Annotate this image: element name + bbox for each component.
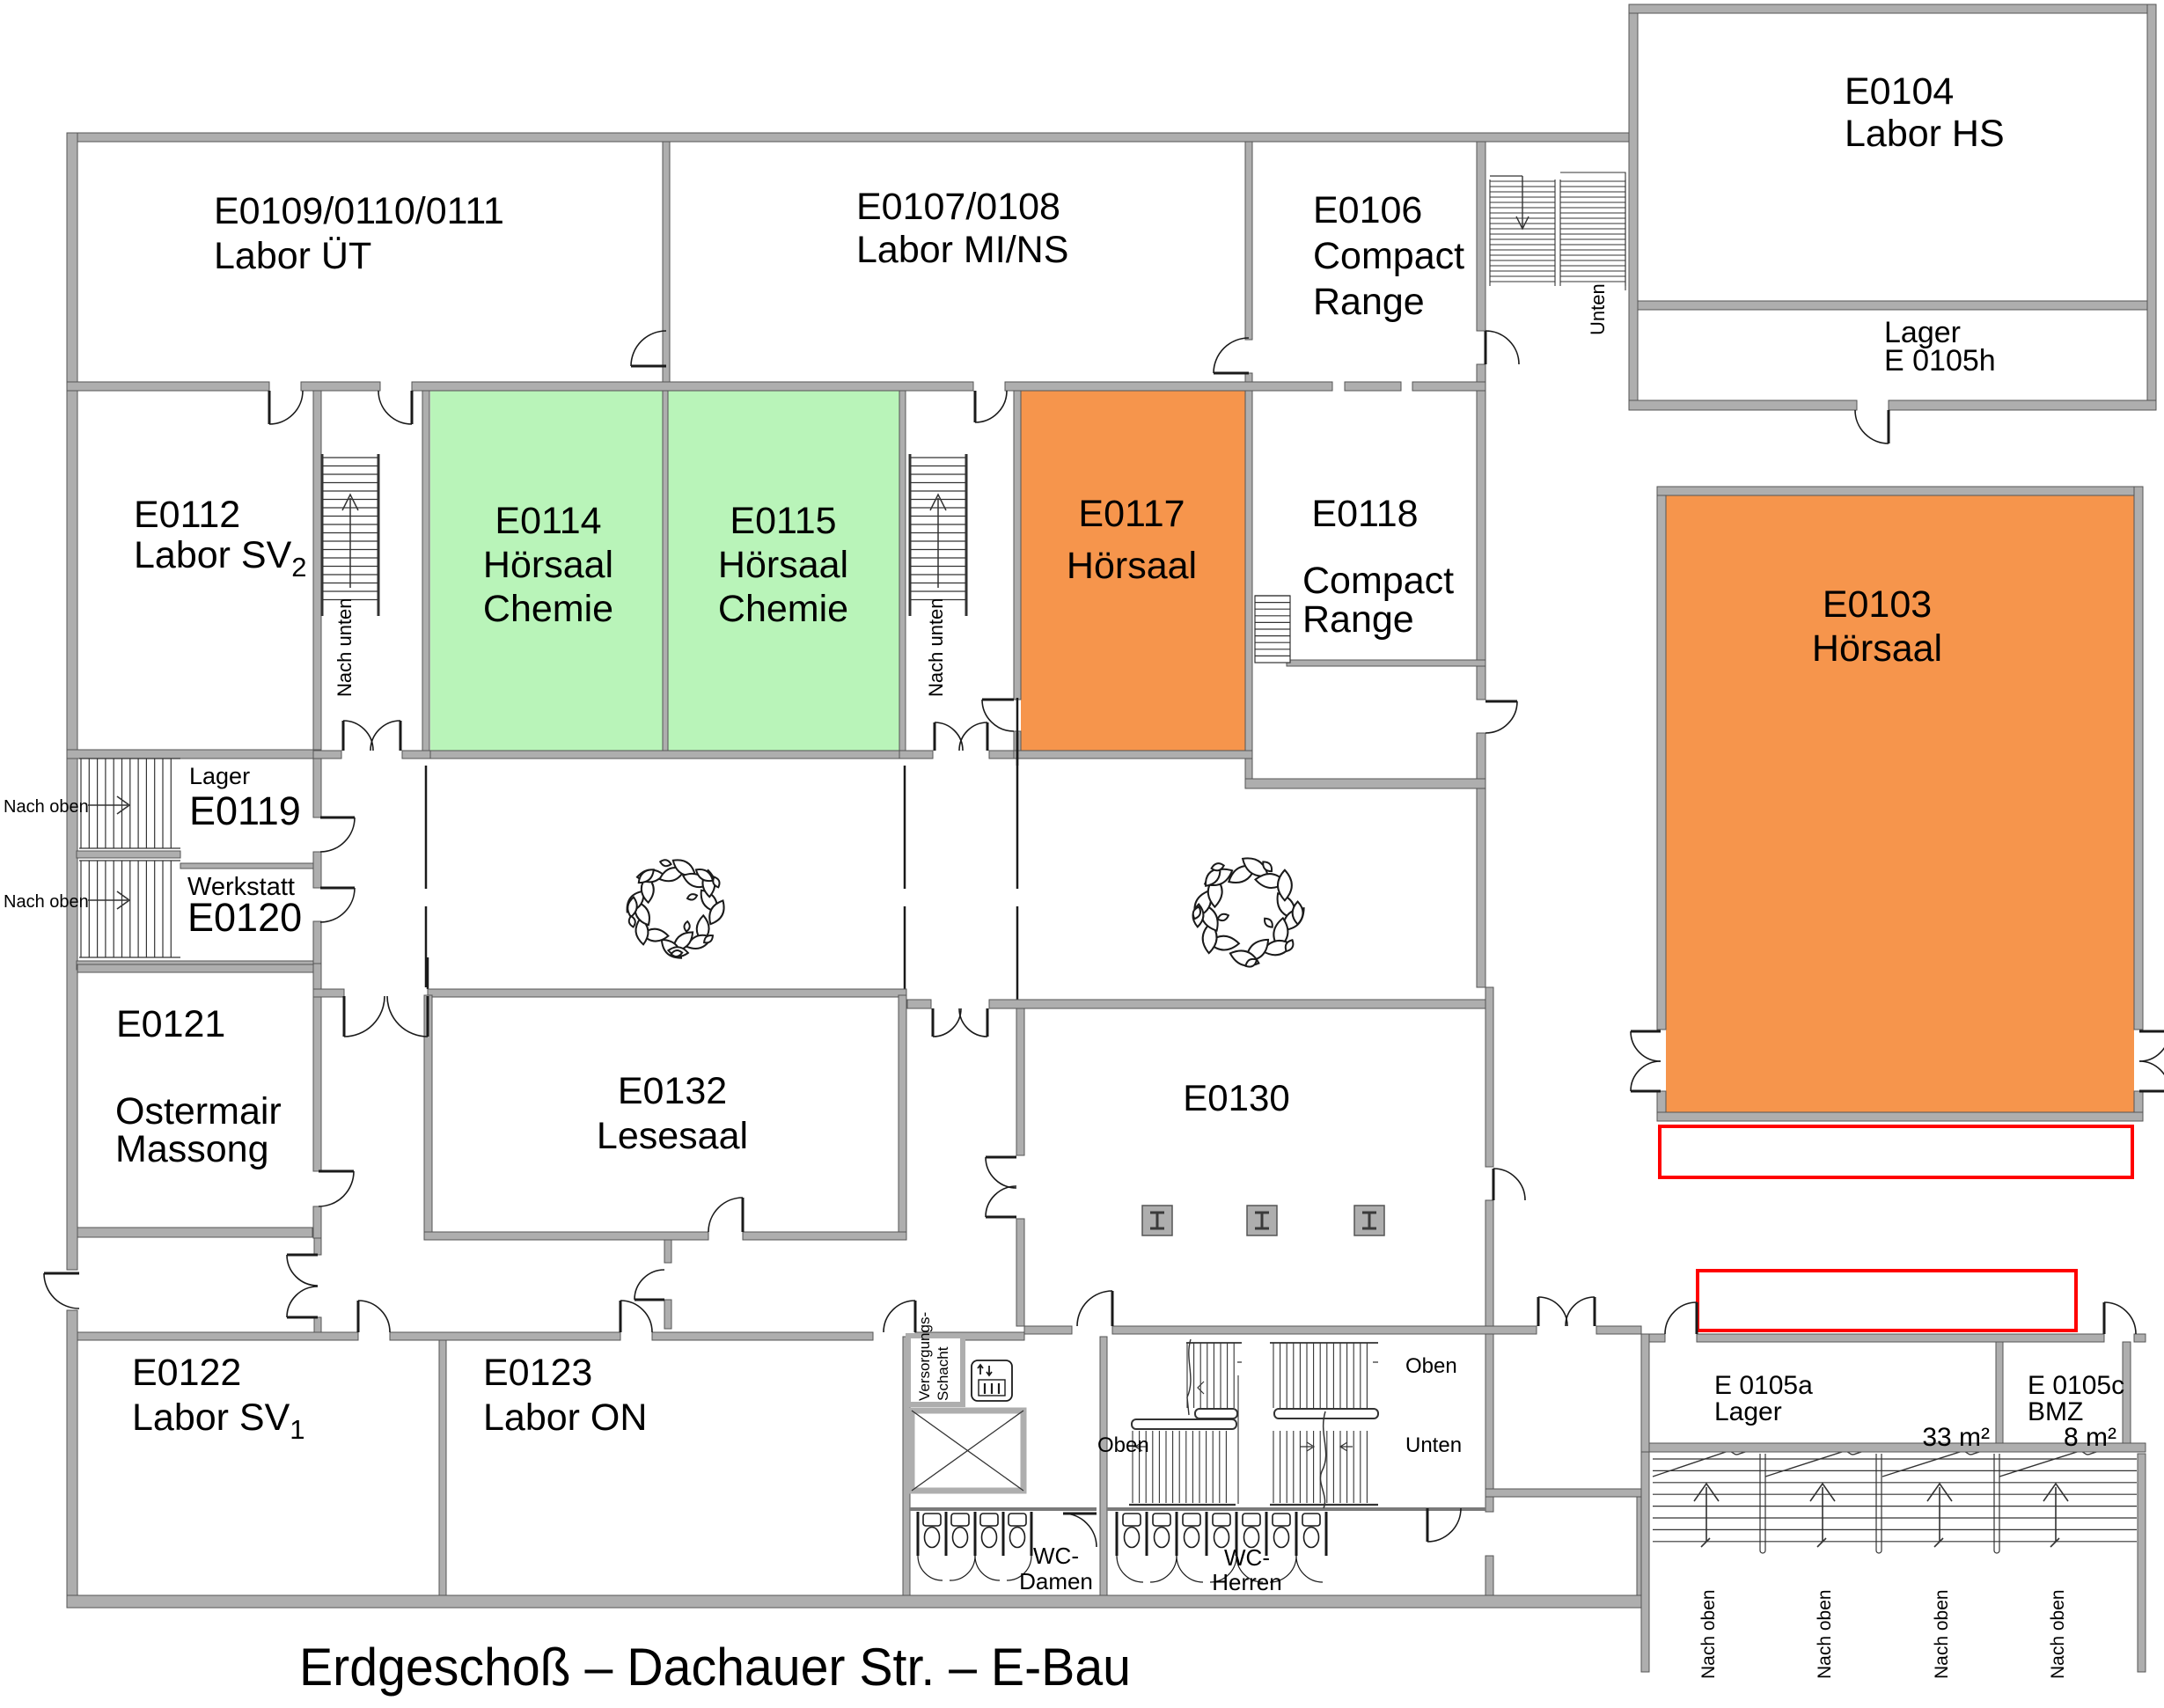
- svg-text:Ostermair: Ostermair: [115, 1090, 282, 1133]
- svg-text:E0123: E0123: [483, 1352, 592, 1394]
- svg-text:E0119: E0119: [189, 788, 301, 833]
- svg-text:Labor ON: Labor ON: [483, 1396, 647, 1439]
- svg-text:Labor ÜT: Labor ÜT: [214, 235, 371, 277]
- svg-text:Unten: Unten: [1405, 1433, 1462, 1457]
- svg-text:E0107/0108: E0107/0108: [856, 186, 1060, 228]
- svg-text:Nach oben: Nach oben: [4, 892, 89, 912]
- svg-text:Hörsaal: Hörsaal: [483, 544, 613, 586]
- svg-text:Range: Range: [1302, 598, 1414, 641]
- svg-text:Unten: Unten: [1587, 283, 1609, 335]
- svg-text:Nach oben: Nach oben: [1698, 1589, 1719, 1679]
- svg-text:Chemie: Chemie: [718, 588, 848, 630]
- svg-text:E0109/0110/0111: E0109/0110/0111: [214, 190, 504, 232]
- svg-text:Hörsaal: Hörsaal: [1812, 627, 1942, 670]
- svg-text:E0130: E0130: [1183, 1077, 1289, 1118]
- svg-text:E0112: E0112: [134, 494, 240, 536]
- svg-text:Labor SV1: Labor SV1: [132, 1396, 305, 1445]
- svg-text:Massong: Massong: [115, 1128, 268, 1170]
- svg-text:E0104: E0104: [1845, 70, 1954, 113]
- svg-text:Nach oben: Nach oben: [1932, 1589, 1952, 1679]
- svg-text:WC-: WC-: [1224, 1544, 1270, 1571]
- svg-text:Hörsaal: Hörsaal: [1067, 545, 1197, 587]
- svg-text:8 m²: 8 m²: [2064, 1423, 2116, 1452]
- svg-text:E0132: E0132: [618, 1070, 727, 1112]
- svg-text:Nach oben: Nach oben: [1815, 1589, 1835, 1679]
- svg-text:Oben: Oben: [1097, 1433, 1149, 1457]
- svg-text:Nach oben: Nach oben: [2048, 1589, 2068, 1679]
- svg-text:Compact: Compact: [1302, 560, 1454, 602]
- svg-text:Lesesaal: Lesesaal: [597, 1115, 748, 1157]
- svg-text:E 0105h: E 0105h: [1884, 344, 1996, 378]
- svg-text:E0122: E0122: [132, 1352, 241, 1394]
- svg-text:Herren: Herren: [1212, 1569, 1281, 1595]
- svg-text:Erdgeschoß – Dachauer Str. – E: Erdgeschoß – Dachauer Str. – E-Bau: [299, 1638, 1131, 1697]
- svg-text:E0106: E0106: [1313, 189, 1422, 231]
- svg-text:Nach unten: Nach unten: [334, 597, 356, 697]
- svg-text:E 0105c: E 0105c: [2028, 1371, 2124, 1400]
- svg-text:Lager: Lager: [189, 763, 250, 789]
- svg-text:Labor MI/NS: Labor MI/NS: [856, 229, 1068, 271]
- svg-text:Compact: Compact: [1313, 235, 1464, 277]
- svg-text:Nach unten: Nach unten: [925, 597, 947, 697]
- svg-text:Nach oben: Nach oben: [4, 797, 89, 817]
- svg-text:Labor HS: Labor HS: [1845, 113, 2005, 155]
- svg-text:Hörsaal: Hörsaal: [718, 544, 848, 586]
- svg-text:Versorgungs-: Versorgungs-: [916, 1312, 933, 1401]
- svg-text:E0118: E0118: [1311, 493, 1418, 535]
- svg-text:E0120: E0120: [187, 895, 302, 940]
- svg-text:Oben: Oben: [1405, 1354, 1457, 1378]
- svg-text:E0115: E0115: [730, 500, 836, 542]
- svg-text:Labor SV2: Labor SV2: [134, 534, 307, 583]
- svg-text:Schacht: Schacht: [935, 1346, 951, 1401]
- svg-text:E0117: E0117: [1078, 493, 1185, 535]
- svg-text:Damen: Damen: [1019, 1568, 1093, 1594]
- svg-text:WC-: WC-: [1033, 1543, 1079, 1569]
- svg-text:Lager: Lager: [1714, 1397, 1782, 1426]
- svg-text:Chemie: Chemie: [483, 588, 613, 630]
- svg-text:Range: Range: [1313, 281, 1425, 323]
- svg-text:33 m²: 33 m²: [1922, 1423, 1990, 1452]
- svg-text:E 0105a: E 0105a: [1714, 1371, 1813, 1400]
- svg-text:E0114: E0114: [495, 500, 601, 542]
- svg-text:E0103: E0103: [1823, 583, 1932, 626]
- svg-text:E0121: E0121: [116, 1003, 225, 1045]
